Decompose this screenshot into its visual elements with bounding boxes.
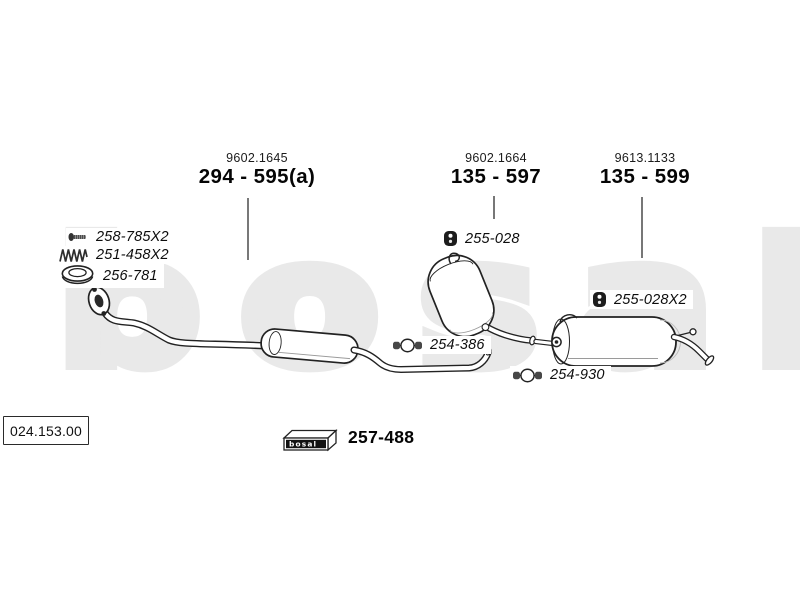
part-label: 251-458X2 xyxy=(96,247,169,263)
part-254-930: 254-930 xyxy=(510,366,611,384)
part-255-028X2: 255-028X2 xyxy=(590,290,693,309)
bosal-box-brand: bosal xyxy=(289,440,317,449)
part-label: 258-785X2 xyxy=(96,229,169,245)
bosal-box-icon: bosal xyxy=(281,422,339,452)
part-label: 255-028X2 xyxy=(614,292,687,308)
pipe-clamp-icon xyxy=(512,368,543,383)
assembly-part-number: 294 - 595(a) xyxy=(171,165,343,188)
rubber-hanger-icon xyxy=(592,291,607,308)
pipe-clamp-icon xyxy=(392,338,423,353)
assembly-part-number: 135 - 597 xyxy=(410,165,582,188)
bolt-icon xyxy=(68,232,89,242)
catalogue-reference-box: 024.153.00 xyxy=(3,416,89,445)
part-label: 256-781 xyxy=(103,268,158,284)
catalogue-reference-number: 024.153.00 xyxy=(10,423,82,439)
assembly-135-599: 9613.1133 135 - 599 xyxy=(559,151,731,188)
part-258-785X2: 258-785X2 xyxy=(66,228,175,246)
assembly-ref-code: 9613.1133 xyxy=(559,151,731,165)
rubber-hanger-icon xyxy=(443,230,458,247)
gasket-ring-icon xyxy=(59,264,96,287)
part-251-458X2: 251-458X2 xyxy=(56,246,175,264)
part-256-781: 256-781 xyxy=(57,263,164,288)
part-255-028: 255-028 xyxy=(441,229,526,248)
assembly-ref-code: 9602.1664 xyxy=(410,151,582,165)
fitting-kit-257-488: bosal 257-488 xyxy=(281,422,414,452)
assembly-135-597: 9602.1664 135 - 597 xyxy=(410,151,582,188)
assembly-part-number: 135 - 599 xyxy=(559,165,731,188)
part-label: 255-028 xyxy=(465,231,520,247)
part-label: 254-930 xyxy=(550,367,605,383)
exhaust-parts-diagram-page: bosal xyxy=(0,0,800,600)
part-label: 254-386 xyxy=(430,337,485,353)
spring-icon xyxy=(58,248,89,263)
kit-part-number: 257-488 xyxy=(348,427,414,448)
part-254-386: 254-386 xyxy=(390,336,491,354)
assembly-294-595a: 9602.1645 294 - 595(a) xyxy=(171,151,343,188)
assembly-ref-code: 9602.1645 xyxy=(171,151,343,165)
